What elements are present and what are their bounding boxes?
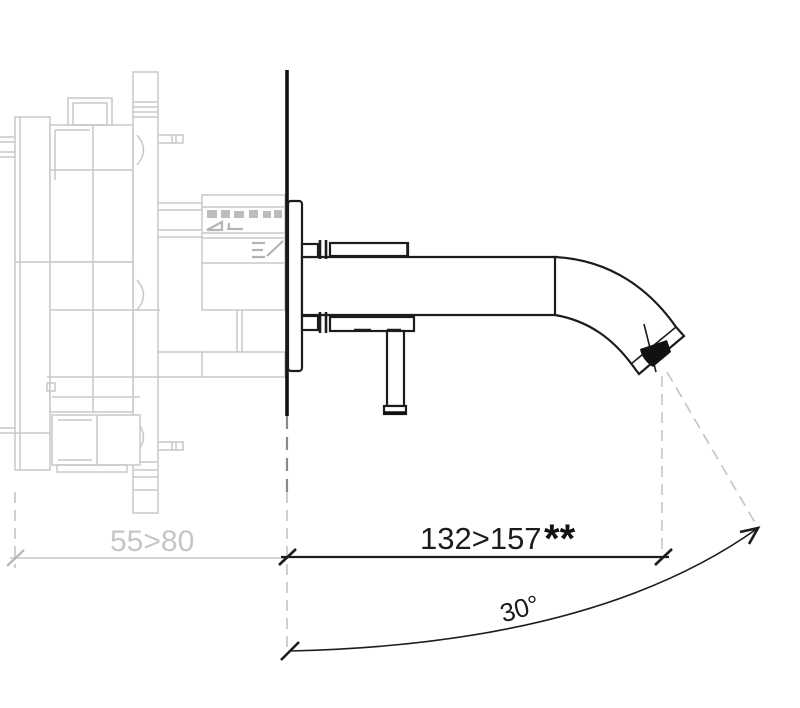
projection-line-diagonal [667, 372, 757, 526]
angle-arrow-right [740, 528, 758, 544]
ghost-lower-connector [202, 352, 285, 377]
dimension-reach: 132>157 ** [279, 517, 672, 565]
mount-stub [302, 244, 318, 257]
ghost-detail [0, 428, 15, 433]
ghost-upper-arm [158, 203, 202, 237]
spout-tube [302, 257, 556, 315]
drawing-page: 55>80 [0, 0, 800, 708]
ghost-detail [237, 310, 242, 352]
ghost-side-stub [158, 442, 183, 450]
dimension-label-reach: 132>157 [420, 521, 542, 556]
faucet-technical-drawing: 55>80 [0, 0, 800, 708]
mount-stub [302, 316, 318, 330]
handle-base [330, 317, 414, 331]
handle-lever [384, 331, 406, 414]
ghost-top-port [68, 98, 112, 125]
spout-upper-mount [302, 240, 408, 259]
ghost-side-stub [158, 135, 183, 143]
ghost-detail [0, 137, 15, 157]
ghost-upper-block [50, 125, 133, 262]
dimension-label-depth: 55>80 [110, 525, 194, 558]
spout [302, 240, 684, 374]
ghost-mid-block [50, 262, 133, 412]
concealed-valve-ghost [0, 72, 285, 513]
projection-lines [662, 372, 757, 556]
mount-body [330, 243, 408, 256]
ghost-lower-arm [158, 352, 202, 377]
dimension-label-reach-note: ** [544, 517, 576, 561]
ghost-bottom-port [52, 415, 140, 465]
wall-plate [288, 201, 302, 371]
handle-rod [387, 331, 404, 406]
